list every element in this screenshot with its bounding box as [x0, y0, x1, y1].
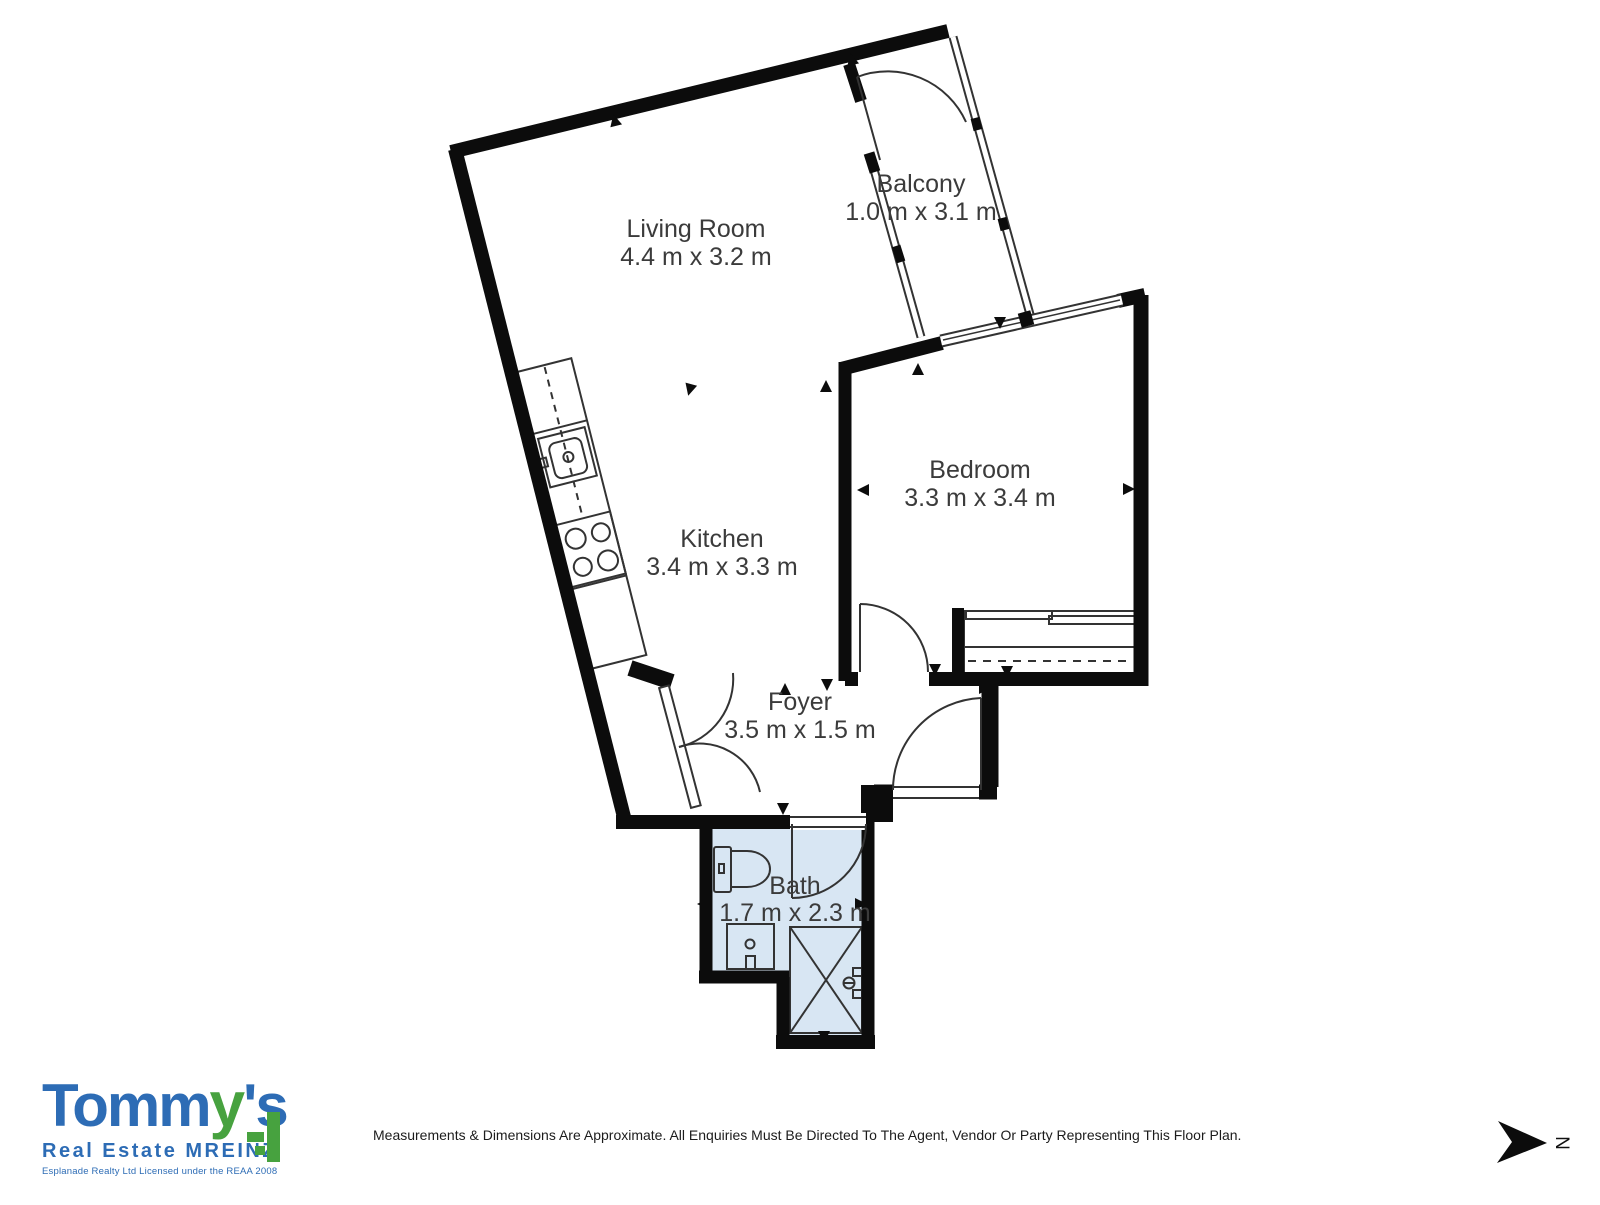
window-divider	[1024, 312, 1028, 326]
room-label-bedroom: Bedroom 3.3 m x 3.4 m	[904, 456, 1055, 512]
bedroom-door-opening	[858, 671, 929, 687]
railing-divider	[869, 153, 875, 172]
room-label-kitchen: Kitchen 3.4 m x 3.3 m	[646, 525, 797, 581]
room-label-living-room: Living Room 4.4 m x 3.2 m	[620, 215, 771, 271]
balcony-door-leaf	[857, 77, 880, 160]
living-room-name: Living Room	[627, 215, 766, 243]
kitchen-name: Kitchen	[680, 525, 763, 553]
key-icon	[243, 1112, 291, 1164]
opening-marker	[1123, 483, 1135, 495]
foyer-dims: 3.5 m x 1.5 m	[724, 716, 875, 744]
bedroom-top-right-corner	[1118, 295, 1145, 301]
bath-dims: 1.7 m x 2.3 m	[719, 899, 870, 927]
railing-divider	[975, 118, 978, 130]
balcony-name: Balcony	[877, 170, 966, 198]
bedroom-top-wall	[841, 343, 942, 369]
opening-marker	[820, 380, 832, 392]
brand-tagline: Esplanade Realty Ltd Licensed under the …	[42, 1166, 382, 1177]
key-tooth	[247, 1132, 264, 1142]
kitchen-dims: 3.4 m x 3.3 m	[646, 553, 797, 581]
kitchen-foyer-stub-wall	[630, 668, 672, 682]
entry-door-swing	[893, 698, 981, 790]
north-arrow-icon	[1497, 1121, 1547, 1163]
key-tooth	[255, 1146, 265, 1155]
balcony-dims: 1.0 m x 3.1 m	[845, 198, 996, 226]
balcony-door-swing	[857, 71, 966, 122]
brand-part-2: y	[210, 1068, 244, 1140]
bedroom-door-swing	[860, 604, 928, 672]
railing-divider	[1002, 218, 1005, 230]
opening-marker	[912, 363, 924, 375]
opening-marker	[857, 484, 869, 496]
brand-part-1: Tomm	[42, 1072, 210, 1139]
floor-plan-canvas: Living Room 4.4 m x 3.2 m Balcony 1.0 m …	[0, 0, 1600, 1200]
bedroom-wardrobe	[964, 611, 1135, 673]
north-arrow: N	[1497, 1121, 1572, 1163]
floorplan-page: { "floor_plan": { "rooms": { "living_roo…	[0, 0, 1600, 1200]
opening-marker	[777, 803, 789, 815]
room-label-foyer: Foyer 3.5 m x 1.5 m	[724, 688, 875, 744]
living-room-dims: 4.4 m x 3.2 m	[620, 243, 771, 271]
foyer-name: Foyer	[768, 688, 832, 716]
opening-marker	[682, 383, 697, 398]
disclaimer-text: Measurements & Dimensions Are Approximat…	[373, 1127, 1203, 1143]
bedroom-name: Bedroom	[929, 456, 1030, 484]
north-arrow-label: N	[1551, 1136, 1572, 1150]
railing-divider	[896, 246, 901, 262]
room-label-balcony: Balcony 1.0 m x 3.1 m	[845, 170, 996, 226]
brand-subtitle: Real Estate MREINZ	[42, 1140, 382, 1163]
bedroom-dims: 3.3 m x 3.4 m	[904, 484, 1055, 512]
key-stem	[267, 1112, 280, 1162]
agency-logo: Tommy's Real Estate MREINZ Esplanade Rea…	[42, 1072, 382, 1177]
brand-name: Tommy's	[42, 1072, 382, 1136]
bath-name: Bath	[769, 872, 820, 900]
